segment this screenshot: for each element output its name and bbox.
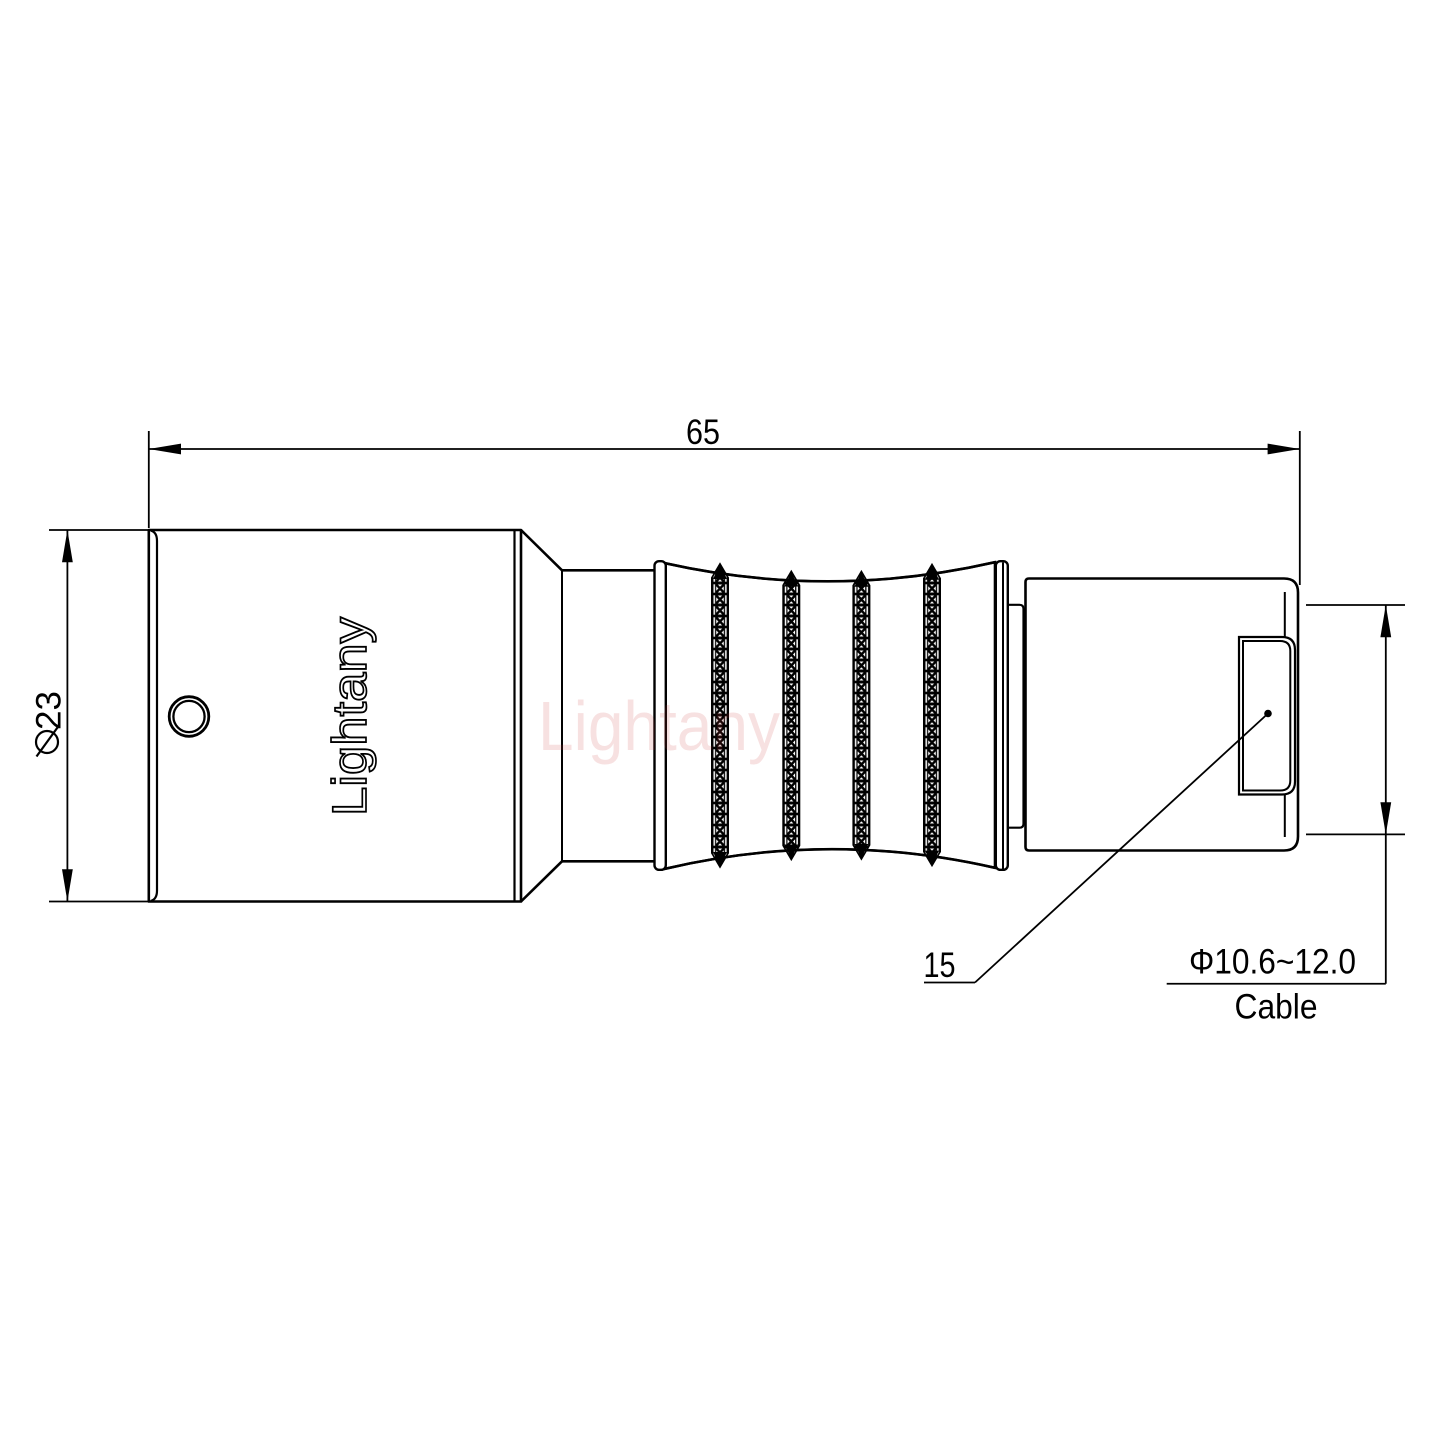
svg-text:15: 15 (924, 946, 956, 985)
svg-text:Lightany: Lightany (324, 617, 377, 816)
svg-text:23: 23 (30, 691, 69, 730)
svg-text:Lightany: Lightany (538, 687, 780, 765)
svg-text:65: 65 (686, 413, 720, 452)
svg-text:Cable: Cable (1235, 988, 1318, 1027)
svg-text:Φ10.6~12.0: Φ10.6~12.0 (1189, 943, 1356, 982)
